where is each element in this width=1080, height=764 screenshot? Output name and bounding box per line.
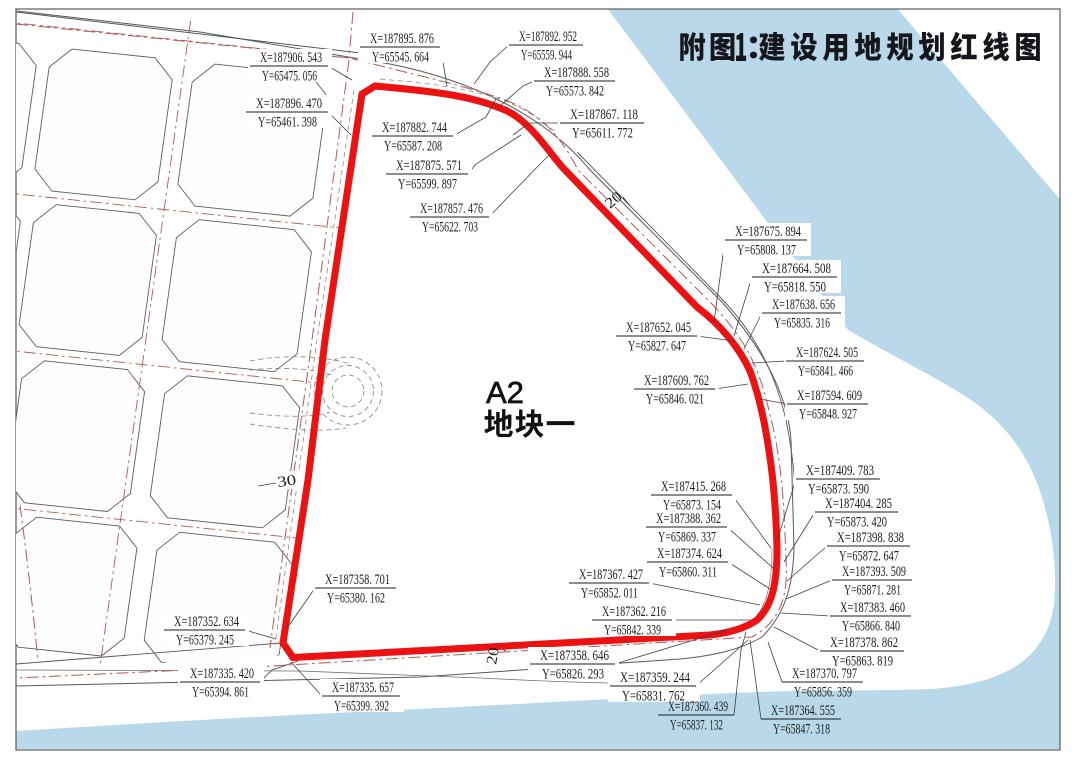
svg-text:X=187895. 876: X=187895. 876 [370,31,434,47]
svg-text:20: 20 [484,646,503,666]
svg-text:Y=65827. 647: Y=65827. 647 [628,339,686,355]
svg-text:X=187867. 118: X=187867. 118 [570,107,638,123]
svg-text:Y=65818. 550: Y=65818. 550 [764,280,826,296]
svg-text:X=187594. 609: X=187594. 609 [797,388,862,404]
svg-text:X=187409. 783: X=187409. 783 [806,463,874,479]
svg-text:Y=65379. 245: Y=65379. 245 [176,633,234,649]
svg-text:X=187857. 476: X=187857. 476 [420,201,483,217]
svg-text:Y=65394. 861: Y=65394. 861 [192,685,249,701]
svg-text:X=187383. 460: X=187383. 460 [840,600,905,616]
svg-text:Y=65856. 359: Y=65856. 359 [794,685,852,701]
svg-text:Y=65399. 392: Y=65399. 392 [334,699,389,715]
svg-text:Y=65846. 021: Y=65846. 021 [646,392,704,408]
svg-text:X=187367. 427: X=187367. 427 [579,567,643,583]
svg-text:X=187906. 543: X=187906. 543 [260,50,322,66]
svg-text:Y=65573. 842: Y=65573. 842 [546,84,604,100]
svg-text:A2: A2 [486,375,524,410]
svg-text:Y=65866. 840: Y=65866. 840 [842,619,900,635]
svg-text:Y=65559. 944: Y=65559. 944 [521,48,572,64]
svg-text:X=187378. 862: X=187378. 862 [830,635,898,651]
svg-text:X=187352. 634: X=187352. 634 [174,614,239,630]
svg-text:X=187609. 762: X=187609. 762 [644,373,709,389]
svg-text:X=187675. 894: X=187675. 894 [735,224,801,240]
svg-text:Y=65848. 927: Y=65848. 927 [799,407,857,423]
svg-text:Y=65545. 664: Y=65545. 664 [372,50,429,66]
svg-text:Y=65852. 011: Y=65852. 011 [581,586,638,602]
svg-text:Y=65826. 293: Y=65826. 293 [542,667,604,683]
svg-text:Y=65461. 398: Y=65461. 398 [258,115,317,131]
svg-text:X=187638. 656: X=187638. 656 [772,297,835,313]
svg-text:X=187358. 646: X=187358. 646 [540,648,609,664]
svg-text:Y=65860. 311: Y=65860. 311 [659,565,717,581]
svg-text:Y=65841. 466: Y=65841. 466 [798,364,853,380]
svg-text:Y=65587. 208: Y=65587. 208 [384,139,442,155]
svg-text:X=187415. 268: X=187415. 268 [661,479,726,495]
svg-text:X=187358. 701: X=187358. 701 [325,572,390,588]
svg-text:Y=65599. 897: Y=65599. 897 [398,177,457,193]
svg-text:X=187393. 509: X=187393. 509 [842,564,906,580]
svg-text:Y=65622. 703: Y=65622. 703 [422,220,478,236]
svg-text:X=187652. 045: X=187652. 045 [626,320,691,336]
svg-text:X=187398. 838: X=187398. 838 [837,530,904,546]
svg-text:X=187335. 420: X=187335. 420 [190,666,254,682]
svg-text:X=187335. 657: X=187335. 657 [332,680,394,696]
svg-text:Y=65808. 137: Y=65808. 137 [737,243,796,259]
svg-text:Y=65871. 281: Y=65871. 281 [844,583,901,599]
svg-text:Y=65837. 132: Y=65837. 132 [670,718,723,734]
svg-text:X=187896. 470: X=187896. 470 [256,96,322,112]
svg-text:X=187882. 744: X=187882. 744 [382,120,447,136]
svg-text:X=187364. 555: X=187364. 555 [771,703,835,719]
svg-text:X=187404. 285: X=187404. 285 [825,496,892,512]
svg-text:X=187624. 505: X=187624. 505 [796,345,858,361]
svg-text:Y=65869. 337: Y=65869. 337 [658,530,716,546]
svg-text:X=187664. 508: X=187664. 508 [762,261,831,277]
svg-text:X=187374. 624: X=187374. 624 [657,546,722,562]
svg-text:X=187359. 244: X=187359. 244 [620,670,690,686]
svg-text:30: 30 [276,472,297,490]
svg-text:Y=65872. 647: Y=65872. 647 [839,549,899,565]
svg-text:Y=65873. 420: Y=65873. 420 [827,515,887,531]
svg-text:X=187360. 439: X=187360. 439 [668,699,728,715]
svg-text:Y=65475. 056: Y=65475. 056 [262,69,317,85]
svg-text:Y=65842. 339: Y=65842. 339 [604,623,661,639]
svg-text:Y=65847. 318: Y=65847. 318 [773,722,830,738]
svg-text:X=187388. 362: X=187388. 362 [656,511,721,527]
svg-text:Y=65835. 316: Y=65835. 316 [774,316,830,332]
svg-text:Y=65611. 772: Y=65611. 772 [572,126,633,142]
svg-text:X=187875. 571: X=187875. 571 [396,158,462,174]
svg-text:X=187892. 952: X=187892. 952 [519,29,577,45]
svg-text:X=187370. 797: X=187370. 797 [792,666,857,682]
svg-text:X=187362. 216: X=187362. 216 [602,604,666,620]
svg-text:X=187888. 558: X=187888. 558 [544,65,609,81]
svg-text:Y=65380. 162: Y=65380. 162 [327,591,385,607]
